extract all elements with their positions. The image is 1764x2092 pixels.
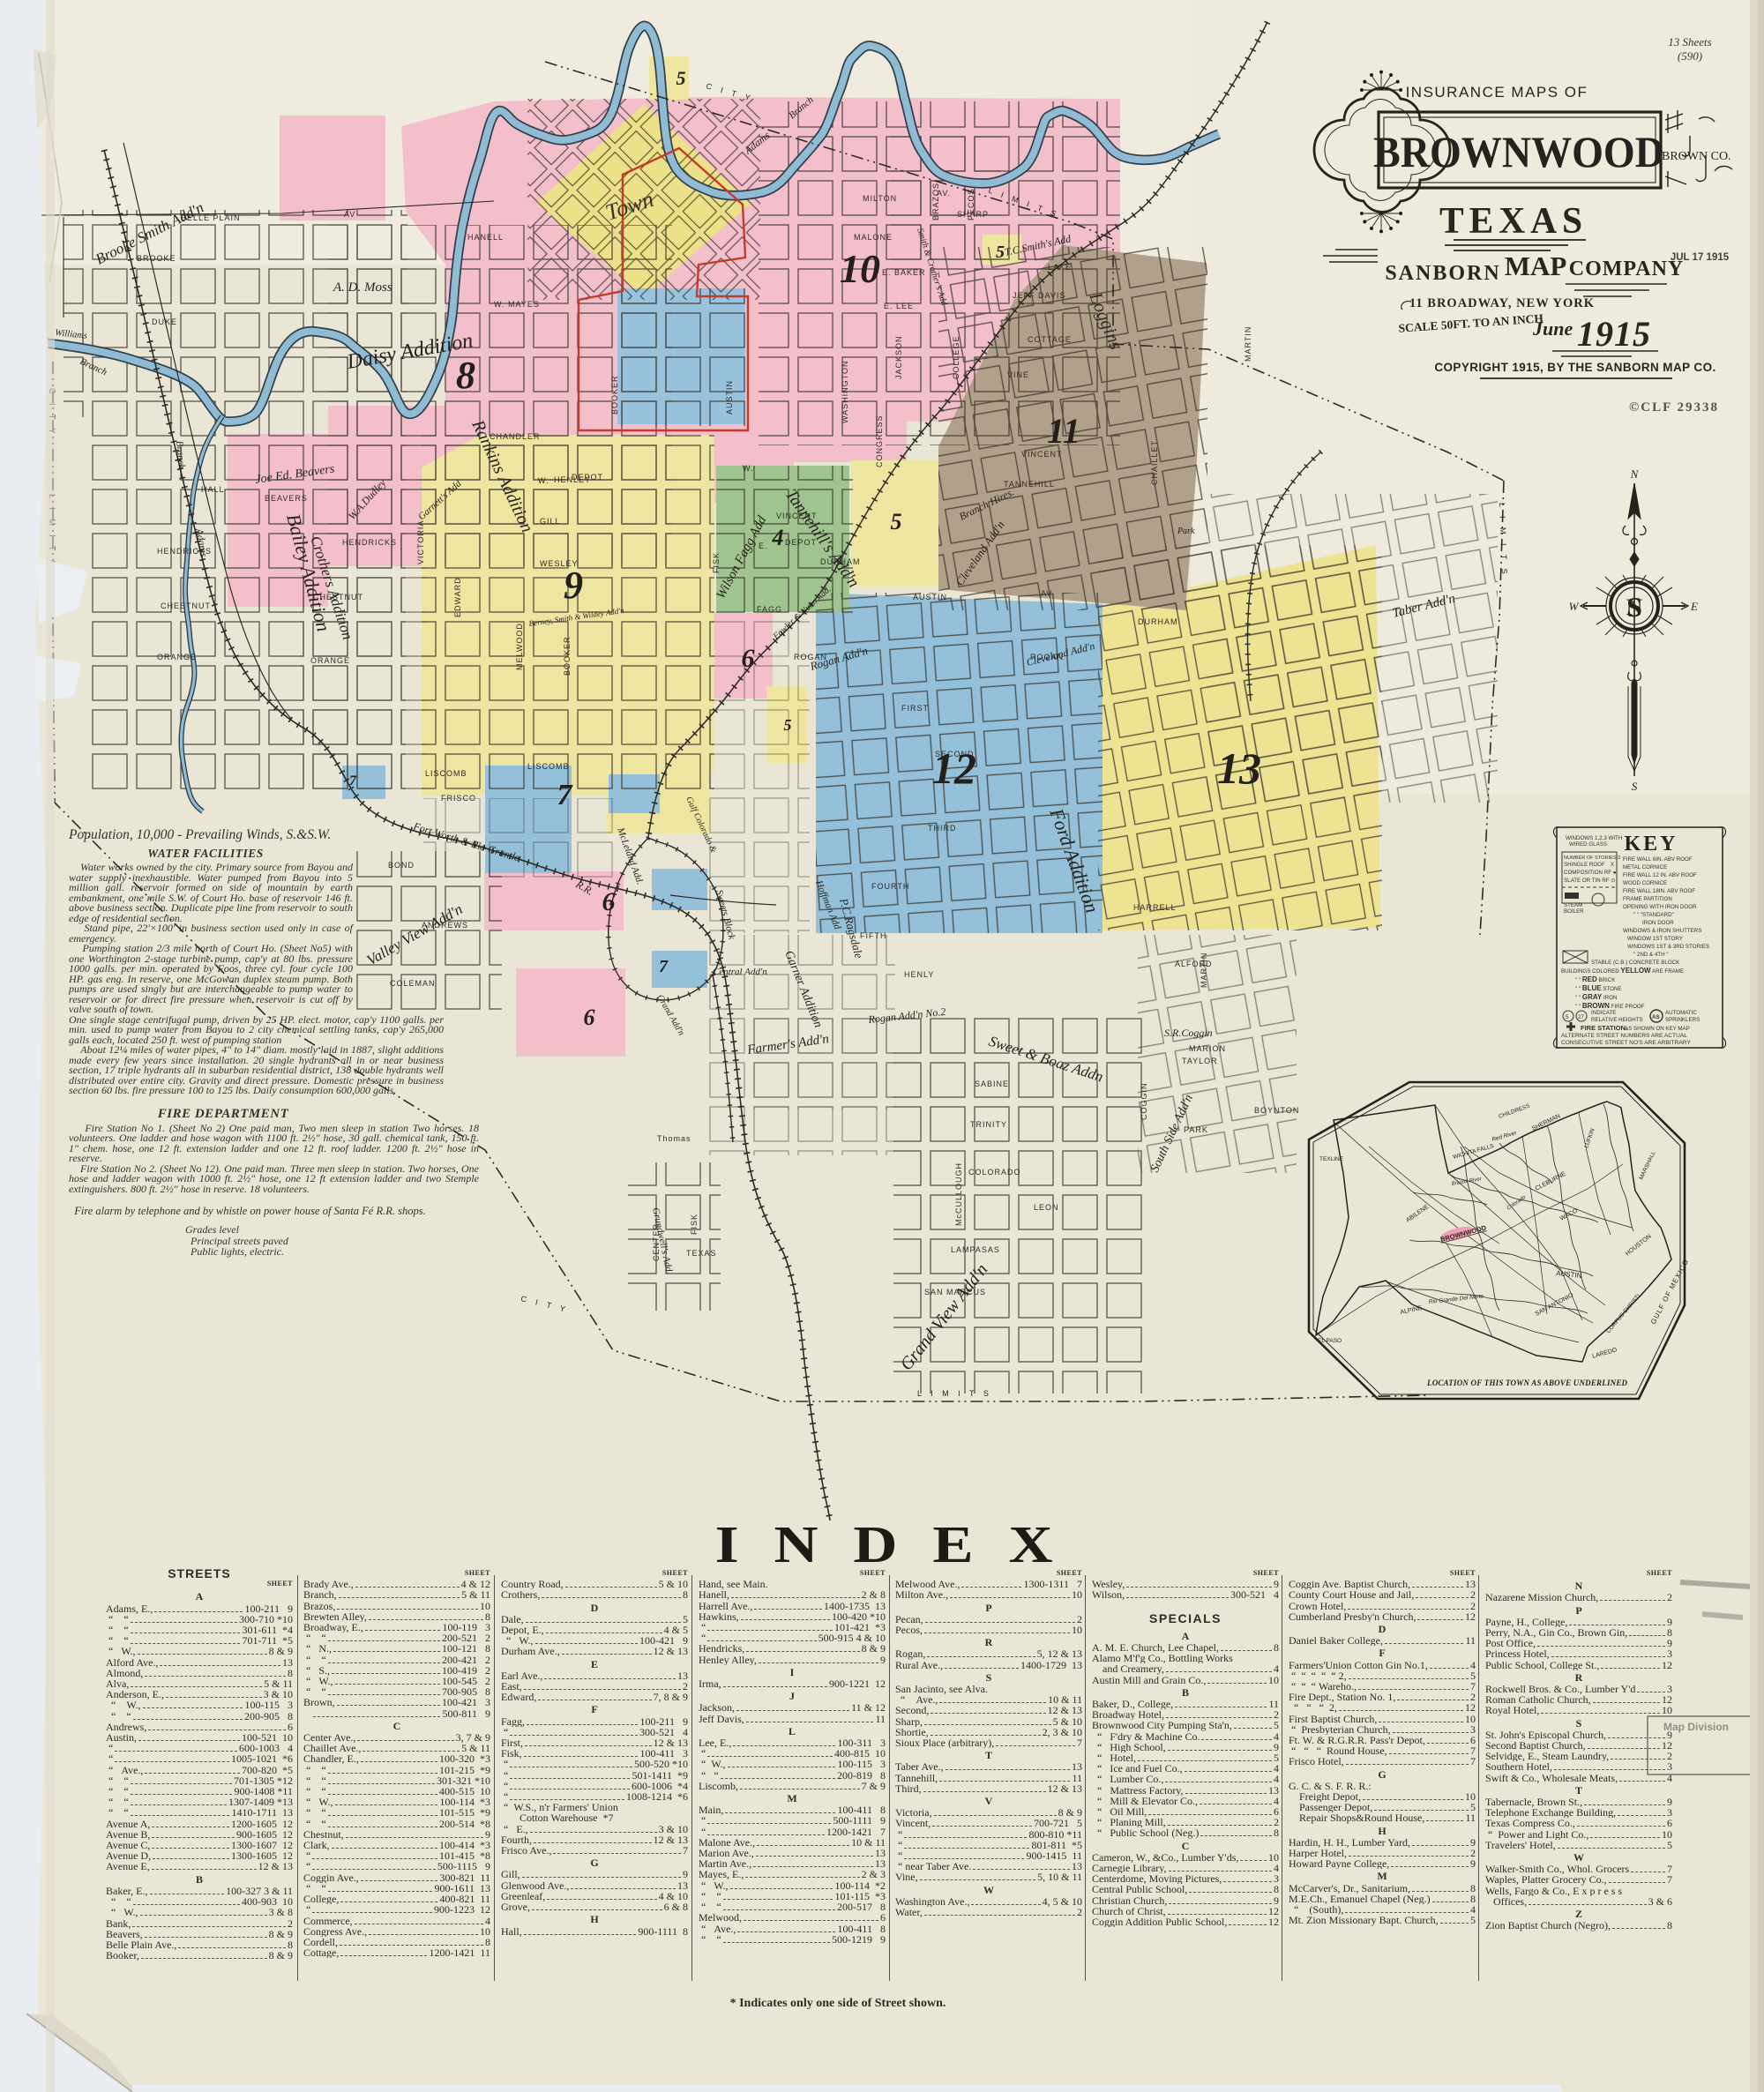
svg-text:11: 11 bbox=[1047, 411, 1080, 451]
svg-text:S.R.Coggin: S.R.Coggin bbox=[1164, 1027, 1213, 1039]
svg-text:7: 7 bbox=[659, 957, 669, 976]
svg-text:ORANGE: ORANGE bbox=[310, 656, 350, 665]
svg-text:TEXLINE: TEXLINE bbox=[1319, 1156, 1344, 1162]
svg-text:COGGIN: COGGIN bbox=[1140, 1082, 1148, 1120]
svg-text:SPRINKLERS: SPRINKLERS bbox=[1665, 1017, 1700, 1023]
svg-text:WINDOWS & IRON SHUTTERS: WINDOWS & IRON SHUTTERS bbox=[1623, 928, 1701, 934]
svg-text:E.: E. bbox=[759, 542, 768, 550]
svg-text:Thomas: Thomas bbox=[657, 1134, 691, 1143]
svg-text:KEY: KEY bbox=[1624, 833, 1678, 855]
svg-text:AS SHOWN ON KEY MAP: AS SHOWN ON KEY MAP bbox=[1625, 1026, 1690, 1032]
svg-text:PARK: PARK bbox=[1184, 1125, 1208, 1134]
svg-text:©CLF 29338: ©CLF 29338 bbox=[1629, 400, 1719, 415]
svg-text:GILL: GILL bbox=[540, 517, 561, 526]
svg-text:BROOKE: BROOKE bbox=[137, 254, 176, 263]
svg-text:AUTOMATIC: AUTOMATIC bbox=[1665, 1010, 1697, 1016]
svg-text:COMPANY: COMPANY bbox=[1569, 258, 1685, 280]
svg-text:WIRED GLASS: WIRED GLASS bbox=[1569, 841, 1607, 848]
svg-text:MELWOOD: MELWOOD bbox=[515, 623, 524, 670]
svg-text:RELATIVE HEIGHTS: RELATIVE HEIGHTS bbox=[1591, 1017, 1643, 1023]
svg-text:L I M I T S: L I M I T S bbox=[917, 1389, 992, 1398]
svg-text:HALL: HALL bbox=[201, 485, 225, 494]
svg-text:NUMBER OF STORIES 3: NUMBER OF STORIES 3 bbox=[1564, 855, 1620, 861]
svg-text:VICTORIA: VICTORIA bbox=[416, 520, 425, 564]
svg-text:DURHAM: DURHAM bbox=[1138, 617, 1178, 626]
svg-text:5: 5 bbox=[996, 243, 1005, 262]
svg-text:FISK: FISK bbox=[690, 1214, 699, 1235]
svg-text:ORANGE: ORANGE bbox=[157, 653, 197, 661]
svg-text:AUSTIN: AUSTIN bbox=[725, 380, 734, 415]
svg-text:W: W bbox=[1569, 600, 1580, 613]
svg-text:E. LEE: E. LEE bbox=[884, 302, 914, 310]
svg-text:TEXAS: TEXAS bbox=[686, 1249, 717, 1258]
svg-text:" " BLUE STONE: " " BLUE STONE bbox=[1575, 984, 1622, 992]
svg-text:SHINGLE ROOF: SHINGLE ROOF bbox=[1564, 862, 1605, 868]
svg-text:FRISCO: FRISCO bbox=[441, 794, 476, 803]
svg-text:WASHINGTON: WASHINGTON bbox=[841, 360, 849, 423]
svg-text:8: 8 bbox=[456, 354, 475, 397]
svg-text:LOCATION OF THIS TOWN AS ABOV: LOCATION OF THIS TOWN AS ABOVE UNDERLINE… bbox=[1426, 1378, 1628, 1387]
svg-text:LISCOMB: LISCOMB bbox=[527, 762, 570, 771]
svg-text:JEFF DAVIS: JEFF DAVIS bbox=[1013, 291, 1065, 300]
svg-text:E: E bbox=[1690, 600, 1698, 613]
svg-text:METAL CORNICE: METAL CORNICE bbox=[1623, 864, 1667, 870]
svg-text:BOILER: BOILER bbox=[1564, 908, 1584, 915]
svg-text:27: 27 bbox=[1578, 1014, 1584, 1020]
svg-text:SABINE: SABINE bbox=[975, 1080, 1009, 1088]
svg-text:AUSTIN: AUSTIN bbox=[913, 593, 947, 601]
svg-text:AV: AV bbox=[344, 210, 355, 219]
svg-text:COLORADO: COLORADO bbox=[968, 1168, 1021, 1177]
svg-text:A. D. Moss: A. D. Moss bbox=[333, 280, 392, 295]
svg-text:E. BAKER: E. BAKER bbox=[882, 268, 926, 277]
svg-text:4: 4 bbox=[772, 525, 784, 550]
svg-text:VINCENT: VINCENT bbox=[1021, 450, 1063, 459]
svg-text:FIRST: FIRST bbox=[901, 704, 929, 713]
svg-text:LAMPASAS: LAMPASAS bbox=[951, 1245, 1000, 1254]
svg-text:CHESTNUT: CHESTNUT bbox=[161, 601, 211, 610]
svg-text:BEAVERS: BEAVERS bbox=[265, 494, 308, 503]
svg-text:S: S bbox=[1632, 780, 1638, 793]
svg-text:FRAME PARTITION: FRAME PARTITION bbox=[1623, 896, 1672, 902]
svg-text:FIFTH: FIFTH bbox=[860, 931, 887, 940]
svg-text:WINDOWS 1ST & 3RD STORIES: WINDOWS 1ST & 3RD STORIES bbox=[1627, 944, 1709, 950]
svg-text:W.: W. bbox=[538, 476, 549, 485]
svg-text:Central Add'n: Central Add'n bbox=[713, 967, 767, 977]
svg-text:6: 6 bbox=[602, 887, 616, 916]
svg-text:LAKE: LAKE bbox=[1048, 263, 1072, 272]
svg-text:SANBORN: SANBORN bbox=[1385, 262, 1500, 285]
svg-text:" " "STANDARD": " " "STANDARD" bbox=[1633, 912, 1674, 918]
svg-text:SLATE OR TIN RF ⊙: SLATE OR TIN RF ⊙ bbox=[1564, 878, 1616, 884]
svg-text:13 Sheets: 13 Sheets bbox=[1668, 35, 1711, 49]
svg-text:LISCOMB: LISCOMB bbox=[425, 769, 467, 778]
svg-text:INDICATE: INDICATE bbox=[1591, 1010, 1616, 1016]
svg-text:6: 6 bbox=[584, 1005, 595, 1030]
svg-text:N: N bbox=[1630, 467, 1640, 481]
svg-text:OPENING WITH IRON DOOR: OPENING WITH IRON DOOR bbox=[1623, 904, 1697, 910]
svg-text:ALTERNATE STREET NUMBERS ARE A: ALTERNATE STREET NUMBERS ARE ACTUAL bbox=[1561, 1033, 1687, 1039]
svg-text:N: N bbox=[1626, 594, 1643, 620]
svg-text:COTTAGE: COTTAGE bbox=[1028, 335, 1072, 344]
svg-text:COLLEGE: COLLEGE bbox=[952, 335, 960, 379]
svg-text:VINE: VINE bbox=[1007, 370, 1029, 379]
svg-text:DUKE: DUKE bbox=[152, 318, 177, 326]
svg-text:HANELL: HANELL bbox=[467, 233, 504, 242]
svg-text:COMPOSITION RF ●: COMPOSITION RF ● bbox=[1564, 870, 1617, 876]
svg-text:FAGG: FAGG bbox=[757, 605, 782, 614]
svg-text:INSURANCE MAPS OF: INSURANCE MAPS OF bbox=[1406, 84, 1588, 101]
svg-text:" " GRAY IRON: " " GRAY IRON bbox=[1575, 993, 1617, 1001]
svg-text:" " RED BRICK: " " RED BRICK bbox=[1575, 975, 1616, 983]
svg-text:HARRELL: HARRELL bbox=[1133, 903, 1177, 912]
svg-text:MILTON: MILTON bbox=[863, 194, 897, 203]
svg-text:FIRE WALL 6IN. ABV ROOF: FIRE WALL 6IN. ABV ROOF bbox=[1623, 856, 1693, 863]
svg-text:10: 10 bbox=[840, 246, 880, 291]
svg-text:BROWN CO.: BROWN CO. bbox=[1662, 150, 1731, 163]
svg-text:HENLEY: HENLEY bbox=[554, 475, 591, 484]
svg-text:FOURTH: FOURTH bbox=[871, 882, 909, 891]
svg-text:9: 9 bbox=[564, 564, 583, 607]
svg-text:MAP: MAP bbox=[1505, 250, 1567, 281]
svg-text:5: 5 bbox=[784, 716, 792, 734]
svg-text:MARTIN: MARTIN bbox=[1244, 326, 1252, 362]
svg-text:X: X bbox=[1611, 862, 1614, 868]
svg-text:" 2ND & 4TH ": " 2ND & 4TH " bbox=[1633, 952, 1668, 958]
svg-text:CHAILLET: CHAILLET bbox=[1150, 440, 1159, 485]
svg-text:11 BROADWAY, NEW YORK: 11 BROADWAY, NEW YORK bbox=[1409, 296, 1595, 310]
svg-text:(590): (590) bbox=[1678, 49, 1702, 63]
svg-text:COPYRIGHT 1915, BY THE SANBORN: COPYRIGHT 1915, BY THE SANBORN MAP CO. bbox=[1434, 361, 1715, 374]
svg-text:EL PASO: EL PASO bbox=[1318, 1338, 1342, 1344]
svg-text:W.: W. bbox=[743, 464, 754, 473]
svg-text:BOYNTON: BOYNTON bbox=[1254, 1106, 1299, 1115]
svg-text:June: June bbox=[1532, 318, 1573, 340]
svg-text:MARTIN: MARTIN bbox=[1200, 953, 1208, 988]
svg-text:STEAM: STEAM bbox=[1564, 902, 1582, 908]
svg-text:CONSECUTIVE STREET NO'S ARE AR: CONSECUTIVE STREET NO'S ARE ARBITRARY bbox=[1561, 1040, 1691, 1046]
svg-text:BROWNWOOD: BROWNWOOD bbox=[1373, 127, 1664, 176]
svg-text:HENDRICKS: HENDRICKS bbox=[342, 538, 397, 547]
svg-text:6: 6 bbox=[742, 644, 755, 673]
svg-text:STABLE (C.B.) CONCRETE BLOCK: STABLE (C.B.) CONCRETE BLOCK bbox=[1591, 960, 1680, 966]
svg-text:7: 7 bbox=[557, 779, 574, 811]
svg-text:BOOKER: BOOKER bbox=[610, 375, 619, 415]
svg-text:BUILDINGS COLORED YELLOW ARE F: BUILDINGS COLORED YELLOW ARE FRAME bbox=[1561, 967, 1684, 975]
svg-text:MARION: MARION bbox=[1189, 1044, 1226, 1053]
svg-text:AS: AS bbox=[1652, 1014, 1660, 1020]
svg-text:FIRE WALL 12 IN. ABV ROOF: FIRE WALL 12 IN. ABV ROOF bbox=[1623, 872, 1697, 878]
svg-text:JACKSON: JACKSON bbox=[894, 335, 903, 379]
svg-text:EDWARD: EDWARD bbox=[453, 577, 462, 617]
svg-text:5: 5 bbox=[891, 509, 902, 534]
svg-text:WINDOWS 1,2,3 WITH: WINDOWS 1,2,3 WITH bbox=[1566, 835, 1622, 841]
svg-text:W. MAYES: W. MAYES bbox=[494, 300, 540, 309]
svg-text:BOOKER: BOOKER bbox=[563, 636, 572, 676]
svg-text:TAYLOR: TAYLOR bbox=[1182, 1057, 1218, 1065]
svg-text:CHANDLER: CHANDLER bbox=[490, 432, 541, 441]
svg-text:1915: 1915 bbox=[1577, 314, 1651, 354]
svg-text:FIRE STATION.: FIRE STATION. bbox=[1581, 1024, 1627, 1032]
svg-text:WINDOW 1ST STORY: WINDOW 1ST STORY bbox=[1627, 936, 1683, 942]
svg-text:Map Division: Map Division bbox=[1663, 1721, 1729, 1733]
svg-text:13: 13 bbox=[1217, 743, 1261, 793]
svg-text:7: 7 bbox=[349, 773, 357, 788]
svg-text:Park: Park bbox=[1177, 527, 1195, 536]
svg-text:McCULLOUGH: McCULLOUGH bbox=[954, 1162, 963, 1226]
svg-text:12: 12 bbox=[932, 743, 976, 793]
svg-text:5: 5 bbox=[1566, 1014, 1569, 1020]
svg-text:LEON: LEON bbox=[1034, 1203, 1059, 1212]
svg-text:PECOS: PECOS bbox=[967, 188, 975, 220]
svg-text:" " BROWN FIRE PROOF: " " BROWN FIRE PROOF bbox=[1575, 1002, 1645, 1010]
svg-text:BRAZOS: BRAZOS bbox=[931, 183, 940, 220]
svg-text:CONGRESS: CONGRESS bbox=[875, 415, 884, 467]
svg-text:FISK: FISK bbox=[712, 552, 721, 573]
svg-text:5: 5 bbox=[676, 67, 686, 89]
svg-text:HENLY: HENLY bbox=[904, 970, 934, 979]
svg-text:JUL 17 1915: JUL 17 1915 bbox=[1671, 252, 1730, 263]
svg-text:THIRD: THIRD bbox=[928, 824, 957, 833]
svg-text:AV.: AV. bbox=[1041, 589, 1055, 598]
svg-text:WOOD CORNICE: WOOD CORNICE bbox=[1623, 880, 1667, 886]
svg-text:TEXAS: TEXAS bbox=[1439, 201, 1588, 242]
svg-text:MALONE: MALONE bbox=[854, 233, 893, 242]
svg-text:IRON DOOR: IRON DOOR bbox=[1642, 920, 1674, 926]
svg-text:TRINITY: TRINITY bbox=[970, 1120, 1007, 1129]
svg-text:FIRE WALL 18IN. ABV ROOF: FIRE WALL 18IN. ABV ROOF bbox=[1623, 888, 1695, 894]
